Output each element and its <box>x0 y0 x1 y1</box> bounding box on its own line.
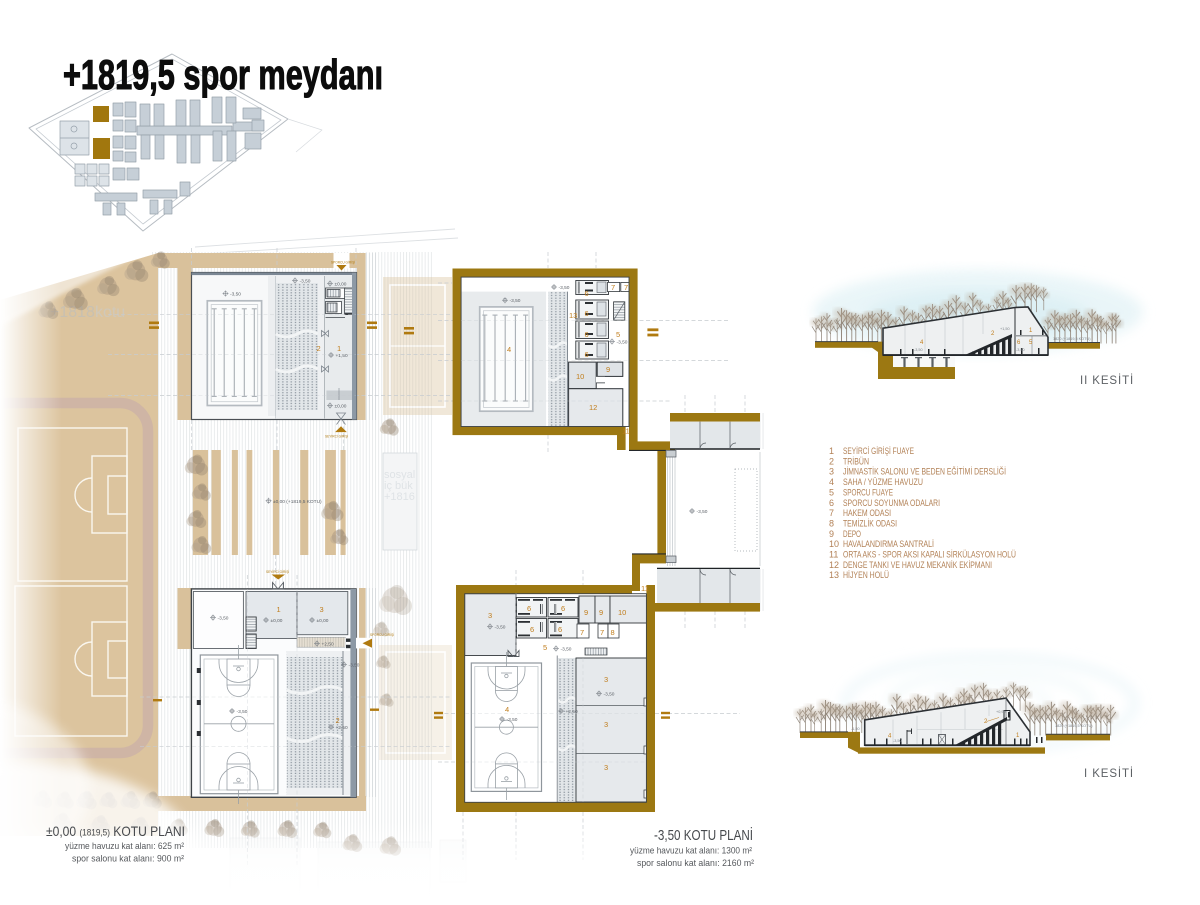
svg-text:2: 2 <box>336 716 340 725</box>
svg-text:10: 10 <box>618 608 626 617</box>
svg-text:1820 (+1819,5 KOTU): 1820 (+1819,5 KOTU) <box>1053 337 1091 341</box>
svg-text:-3,50: -3,50 <box>559 285 570 291</box>
svg-text:1820 (+1819,5 KOTU): 1820 (+1819,5 KOTU) <box>1055 724 1093 728</box>
svg-text:SPORCU SOYUNMA ODALARI: SPORCU SOYUNMA ODALARI <box>843 498 940 508</box>
svg-text:11: 11 <box>622 427 630 436</box>
svg-text:2: 2 <box>829 456 834 466</box>
svg-text:TRİBÜN: TRİBÜN <box>843 456 869 466</box>
svg-text:6: 6 <box>527 604 531 613</box>
svg-text:12: 12 <box>829 560 839 570</box>
svg-text:6: 6 <box>585 309 589 318</box>
svg-text:-3,50: -3,50 <box>495 625 506 631</box>
svg-text:+2,50: +2,50 <box>336 725 348 731</box>
svg-text:6: 6 <box>558 625 562 634</box>
svg-text:II KESİTİ: II KESİTİ <box>1080 374 1134 387</box>
svg-text:spor salonu kat alanı: 900 m²: spor salonu kat alanı: 900 m² <box>72 854 184 865</box>
svg-text:HİJYEN HOLÜ: HİJYEN HOLÜ <box>843 570 889 580</box>
svg-text:HAKEM ODASI: HAKEM ODASI <box>843 508 891 518</box>
svg-text:-3,50: -3,50 <box>914 348 923 352</box>
svg-text:3: 3 <box>604 763 608 772</box>
svg-text:-3,50: -3,50 <box>218 616 229 622</box>
svg-text:9: 9 <box>599 608 603 617</box>
svg-text:1: 1 <box>829 446 834 456</box>
svg-text:8: 8 <box>611 628 615 637</box>
svg-text:ORTA AKS - SPOR AKSI KAPALI Sİ: ORTA AKS - SPOR AKSI KAPALI SİRKÜLASYON … <box>843 550 1016 560</box>
svg-text:10: 10 <box>829 539 839 549</box>
svg-text:6: 6 <box>585 330 589 339</box>
svg-text:-3,50: -3,50 <box>604 692 615 698</box>
svg-text:10: 10 <box>576 372 584 381</box>
svg-text:6: 6 <box>530 625 534 634</box>
svg-text:-3,50 KOTU PLANİ: -3,50 KOTU PLANİ <box>654 826 753 844</box>
svg-text:-3,50: -3,50 <box>697 509 708 515</box>
svg-text:DENGE TANKI VE HAVUZ MEKANİK E: DENGE TANKI VE HAVUZ MEKANİK EKİPMANI <box>843 560 992 570</box>
svg-text:13: 13 <box>829 570 839 580</box>
svg-text:yüzme havuzu kat alanı: 1300 m: yüzme havuzu kat alanı: 1300 m² <box>630 846 752 857</box>
svg-text:6: 6 <box>561 604 565 613</box>
svg-text:+1,50: +1,50 <box>336 353 348 359</box>
svg-text:SPORCU GİRİŞİ: SPORCU GİRİŞİ <box>331 260 355 265</box>
svg-text:+2,50: +2,50 <box>322 642 334 648</box>
svg-text:13: 13 <box>569 311 577 320</box>
svg-text:8: 8 <box>829 519 834 529</box>
svg-text:+0,90: +0,90 <box>996 710 1006 714</box>
svg-text:DEPO: DEPO <box>843 529 861 539</box>
svg-text:+1816: +1816 <box>384 491 415 503</box>
svg-text:±0,00: ±0,00 <box>271 618 283 624</box>
svg-text:HAVALANDIRMA SANTRALİ: HAVALANDIRMA SANTRALİ <box>843 539 934 549</box>
svg-text:9: 9 <box>606 365 610 374</box>
svg-text:6: 6 <box>829 498 834 508</box>
svg-text:SPORCU FUAYE: SPORCU FUAYE <box>843 487 893 497</box>
svg-text:SEYİRCİ GİRİŞİ: SEYİRCİ GİRİŞİ <box>325 434 348 439</box>
svg-text:±0,00 (+1819,5 KOTU): ±0,00 (+1819,5 KOTU) <box>273 499 322 505</box>
svg-text:SPORCU GİRİŞİ: SPORCU GİRİŞİ <box>370 632 394 637</box>
svg-text:SEYİRCİ GİRİŞİ: SEYİRCİ GİRİŞİ <box>266 569 289 574</box>
svg-text:spor salonu kat alanı: 2160 m²: spor salonu kat alanı: 2160 m² <box>637 858 754 869</box>
svg-text:6: 6 <box>585 289 589 298</box>
svg-text:±0,00 (1819,5) KOTU PLANI: ±0,00 (1819,5) KOTU PLANI <box>46 823 185 840</box>
svg-text:+1819,5 spor meydanı: +1819,5 spor meydanı <box>63 51 383 98</box>
svg-text:1: 1 <box>277 605 281 614</box>
svg-text:-3,50: -3,50 <box>561 647 572 653</box>
svg-text:7: 7 <box>580 628 584 637</box>
svg-text:JİMNASTİK SALONU VE BEDEN EĞİT: JİMNASTİK SALONU VE BEDEN EĞİTİMİ DERSLİ… <box>843 467 1006 477</box>
svg-text:±0,00: ±0,00 <box>317 618 329 624</box>
svg-text:±0,00: ±0,00 <box>335 404 347 410</box>
svg-text:7: 7 <box>611 283 615 292</box>
svg-text:SEYİRCİ GİRİŞİ FUAYE: SEYİRCİ GİRİŞİ FUAYE <box>843 446 914 456</box>
svg-text:3: 3 <box>604 720 608 729</box>
svg-text:3: 3 <box>829 467 834 477</box>
svg-text:3: 3 <box>488 611 492 620</box>
svg-text:yüzme havuzu kat alanı: 625 m²: yüzme havuzu kat alanı: 625 m² <box>65 841 184 852</box>
svg-text:TEMİZLİK ODASI: TEMİZLİK ODASI <box>843 519 897 529</box>
svg-text:11: 11 <box>641 584 649 593</box>
svg-text:12: 12 <box>589 403 597 412</box>
svg-text:-3,50: -3,50 <box>1016 348 1025 352</box>
svg-text:6: 6 <box>585 350 589 359</box>
svg-text:-3,50: -3,50 <box>237 709 248 715</box>
svg-text:4: 4 <box>505 705 509 714</box>
svg-text:5: 5 <box>543 643 547 652</box>
svg-text:7: 7 <box>829 508 834 518</box>
svg-text:3: 3 <box>320 605 324 614</box>
svg-text:-3,50: -3,50 <box>617 340 628 346</box>
svg-text:-3,50: -3,50 <box>349 663 360 669</box>
svg-text:+1,50: +1,50 <box>1000 327 1010 331</box>
svg-text:4: 4 <box>829 477 834 487</box>
svg-text:11: 11 <box>829 550 838 560</box>
svg-text:4: 4 <box>507 345 511 354</box>
svg-text:+2,50: +2,50 <box>566 709 578 715</box>
svg-text:9: 9 <box>584 608 588 617</box>
svg-text:-3,50: -3,50 <box>893 739 902 743</box>
svg-text:5: 5 <box>829 487 834 497</box>
svg-text:SAHA / YÜZME HAVUZU: SAHA / YÜZME HAVUZU <box>843 477 923 487</box>
svg-text:I KESİTİ: I KESİTİ <box>1084 767 1134 780</box>
svg-text:7: 7 <box>624 283 628 292</box>
svg-text:1: 1 <box>337 344 341 353</box>
svg-text:7: 7 <box>600 628 604 637</box>
svg-text:-3,50: -3,50 <box>507 717 518 723</box>
svg-text:-3,50: -3,50 <box>510 298 521 304</box>
svg-text:5: 5 <box>616 330 620 339</box>
svg-text:3: 3 <box>604 675 608 684</box>
svg-text:2: 2 <box>317 344 321 353</box>
svg-text:-3,50: -3,50 <box>300 279 311 285</box>
svg-text:±0,00: ±0,00 <box>335 282 347 288</box>
svg-text:-3,50: -3,50 <box>230 292 241 298</box>
svg-text:9: 9 <box>829 529 834 539</box>
svg-text:-1,50: -1,50 <box>851 727 860 731</box>
